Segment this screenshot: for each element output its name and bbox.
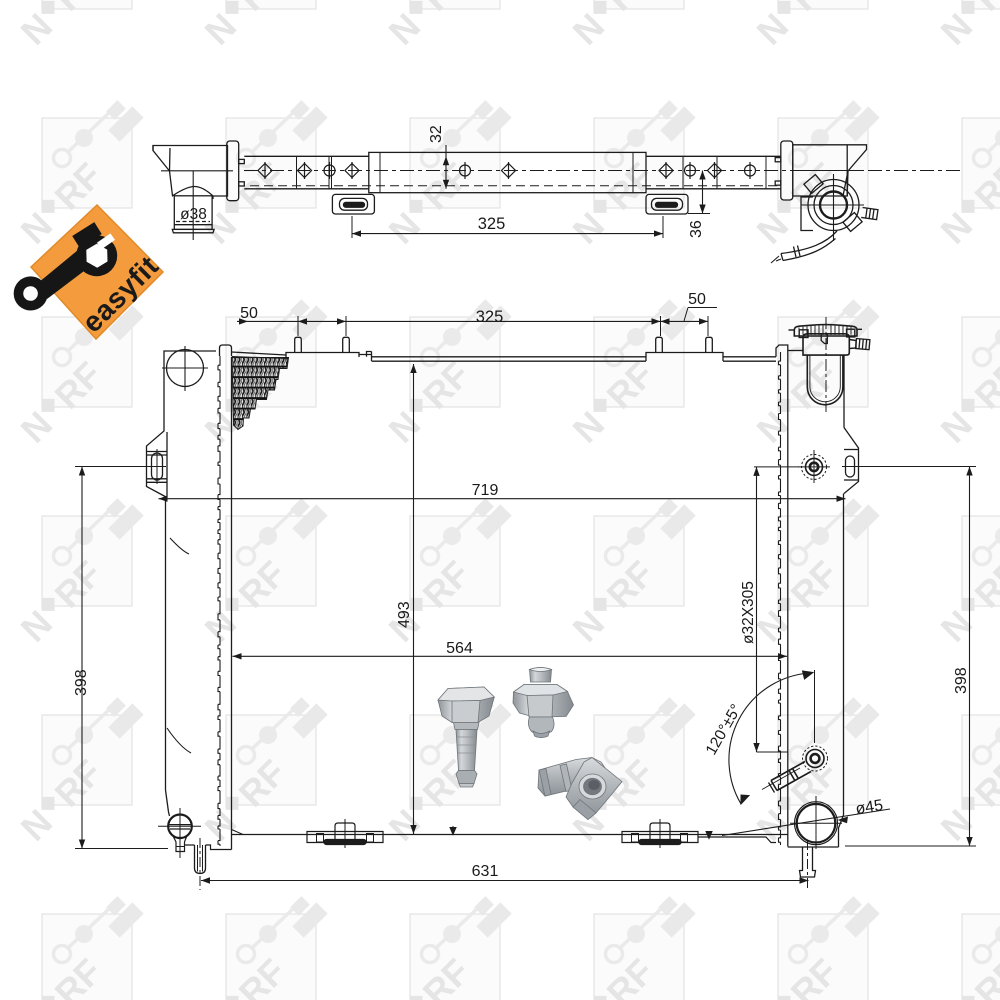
svg-text:50: 50 (688, 291, 706, 308)
svg-text:398: 398 (953, 667, 970, 694)
svg-text:32: 32 (428, 125, 445, 143)
svg-text:631: 631 (472, 863, 499, 880)
svg-text:36: 36 (688, 220, 705, 238)
svg-text:719: 719 (472, 482, 499, 499)
svg-text:325: 325 (478, 215, 506, 233)
svg-text:493: 493 (396, 601, 413, 628)
svg-text:50: 50 (240, 305, 258, 322)
svg-text:325: 325 (476, 308, 504, 326)
svg-text:ø38: ø38 (180, 206, 207, 223)
svg-text:564: 564 (446, 640, 473, 657)
svg-text:ø32X305: ø32X305 (740, 581, 757, 644)
